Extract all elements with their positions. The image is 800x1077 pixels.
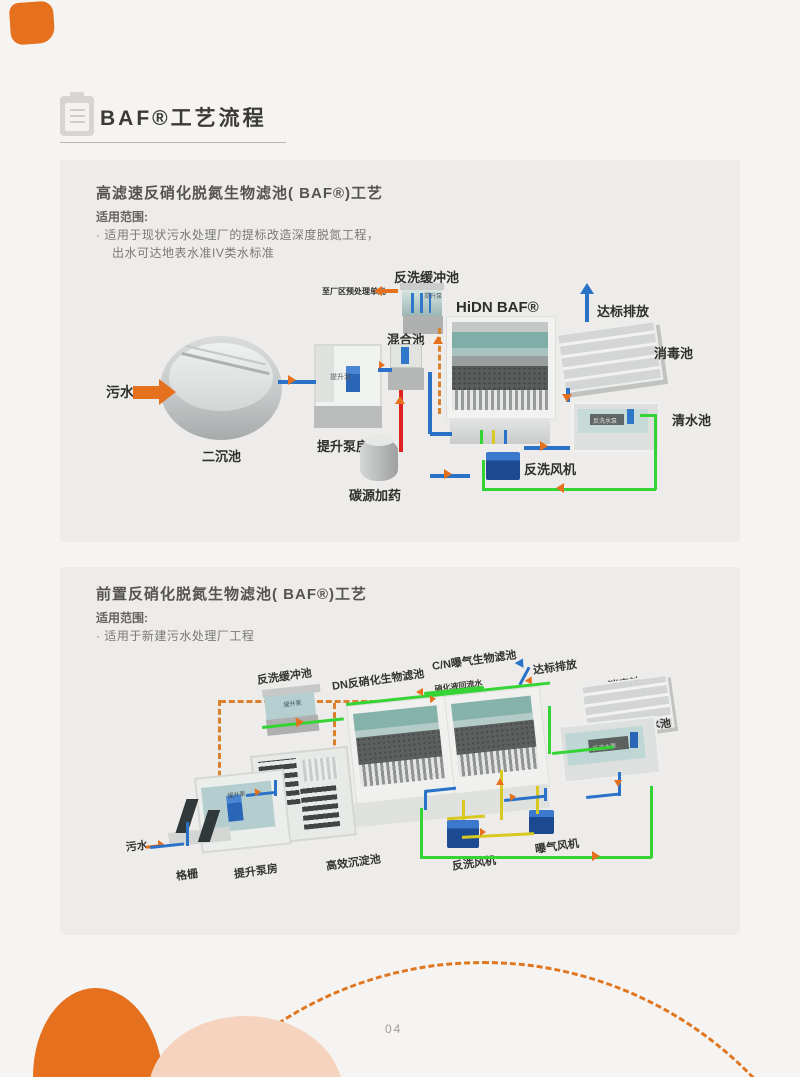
- pipe-segment: [504, 430, 507, 444]
- flow-arrow: [496, 778, 504, 785]
- hidn-layer-media: [452, 356, 548, 366]
- hidn-layer-gravel: [452, 366, 548, 390]
- pipe-segment: [480, 430, 483, 444]
- pretreat-arrow-stem: [382, 289, 398, 293]
- flow-arrow: [540, 441, 548, 451]
- flow-arrow: [433, 336, 443, 344]
- label-screen: 格栅: [175, 865, 199, 884]
- page-number: 04: [385, 1022, 402, 1036]
- sewage-arrow-stem: [133, 386, 159, 399]
- card1-scope-label: 适用范围:: [96, 208, 148, 225]
- sedimentation-slats: [302, 756, 340, 782]
- mixing-tank-base: [388, 368, 424, 390]
- label-lift-pump-1: 提升泵: [330, 372, 351, 382]
- pipe-green: [650, 786, 653, 858]
- flow-arrow: [480, 828, 486, 836]
- pipe-segment: [428, 372, 432, 434]
- card1-title: 高滤速反硝化脱氮生物滤池( BAF®)工艺: [96, 182, 383, 203]
- label-backwash-pump-1: 反洗水泵: [593, 416, 617, 425]
- hidn-layer-nozzles: [452, 390, 548, 410]
- corner-accent-shape: [9, 1, 56, 46]
- pipe-yellow: [462, 800, 465, 820]
- card2-scope-label: 适用范围:: [96, 609, 148, 626]
- pipe-green: [654, 414, 657, 490]
- pipe-green: [482, 460, 485, 490]
- pipe-segment: [492, 430, 495, 444]
- label-discharge-1: 达标排放: [597, 301, 649, 320]
- label-buffer-pump-1: 提升泵: [424, 291, 442, 300]
- pipe-green: [640, 414, 656, 417]
- flow-arrow: [510, 793, 517, 802]
- label-backwash-blower-1: 反洗风机: [524, 459, 576, 478]
- flow-arrow: [416, 688, 423, 696]
- orange-blob-decor: [33, 988, 163, 1077]
- card2-scope-line1: · 适用于新建污水处理厂工程: [96, 627, 254, 644]
- clipboard-line: [70, 115, 85, 117]
- discharge-arrow-icon: [580, 283, 594, 294]
- carbon-tank-top: [364, 434, 394, 446]
- pipe-segment: [278, 380, 316, 384]
- flow-arrow: [295, 717, 304, 728]
- pipe-segment: [424, 792, 427, 810]
- sewage-arrow-icon: [159, 379, 176, 405]
- discharge-pipe: [585, 292, 589, 322]
- flow-arrow: [562, 394, 572, 402]
- label-sewage: 污水: [106, 382, 134, 402]
- card1-scope-line1: · 适用于现状污水处理厂的提标改造深度脱氮工程，: [96, 226, 379, 243]
- hidn-layer-rim: [452, 322, 548, 332]
- brochure-page: BAF®工艺流程 高滤速反硝化脱氮生物滤池( BAF®)工艺 适用范围: · 适…: [0, 0, 800, 1077]
- flow-arrow: [379, 361, 385, 369]
- buffer-tank-rim: [400, 283, 444, 290]
- pump-icon: [627, 409, 634, 424]
- pipe-segment: [274, 780, 277, 796]
- pipe-yellow: [536, 786, 539, 814]
- hidn-layer-water: [452, 332, 548, 348]
- label-carbon-dosing: 碳源加药: [349, 485, 401, 504]
- backwash-blower-1: [486, 452, 520, 480]
- backwash-blower-2: [447, 820, 479, 848]
- flow-arrow: [255, 788, 262, 797]
- pipe-segment: [186, 822, 189, 846]
- clipboard-icon: [60, 96, 94, 136]
- pipe-green: [548, 706, 551, 754]
- flow-arrow: [614, 780, 622, 787]
- clipboard-line: [70, 109, 85, 111]
- pipe-segment: [430, 432, 452, 436]
- flow-arrow: [444, 469, 452, 479]
- mixer-icon: [401, 347, 409, 364]
- clipboard-line: [70, 121, 85, 123]
- card1-scope-line2: 出水可达地表水准IV类水标准: [112, 244, 274, 261]
- flow-arrow: [395, 396, 405, 404]
- pipe-green: [420, 856, 652, 859]
- pump-house-front: [314, 406, 382, 428]
- label-secondary-clarifier: 二沉池: [202, 446, 241, 465]
- label-disinfection-1: 消毒池: [654, 343, 693, 362]
- sedimentation-modules: [300, 784, 340, 830]
- hidn-layer-water2: [452, 348, 548, 356]
- pipe-segment: [544, 788, 547, 801]
- aeration-blower: [529, 810, 554, 834]
- page-title: BAF®工艺流程: [100, 102, 267, 132]
- header-underline: [60, 142, 286, 143]
- pipe-green: [420, 808, 423, 858]
- hidn-base: [450, 418, 550, 444]
- pump-icon: [630, 732, 638, 748]
- flow-arrow: [556, 483, 564, 493]
- label-clearwater-1: 清水池: [672, 410, 711, 429]
- clipboard-clip: [70, 92, 84, 100]
- flow-arrow: [592, 851, 600, 861]
- pipe-green: [482, 488, 656, 491]
- label-hidn-baf: HiDN BAF®: [456, 299, 539, 316]
- clipboard-paper: [65, 103, 89, 131]
- flow-arrow: [288, 375, 296, 385]
- pretreat-arrow-icon: [374, 286, 382, 296]
- flow-arrow: [430, 695, 437, 704]
- card2-title: 前置反硝化脱氮生物滤池( BAF®)工艺: [96, 583, 367, 604]
